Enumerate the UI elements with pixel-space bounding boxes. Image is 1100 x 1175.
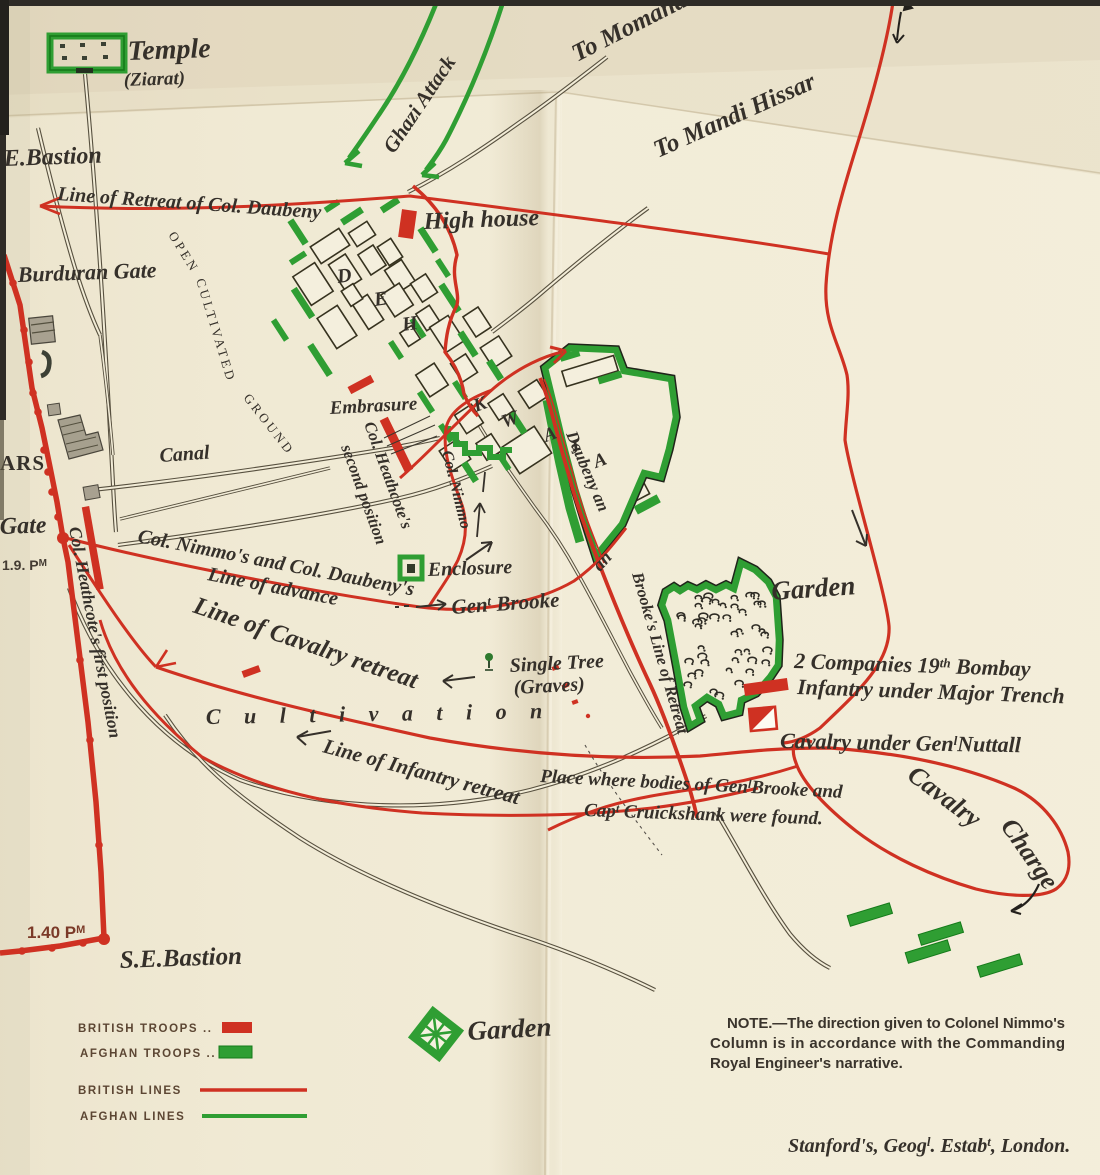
svg-text:High house: High house [422,205,540,235]
svg-text:S.E.Bastion: S.E.Bastion [119,943,242,974]
svg-text:BRITISH TROOPS ..: BRITISH TROOPS .. [78,1023,213,1035]
svg-text:Temple: Temple [127,33,211,67]
svg-text:(Graves): (Graves) [513,673,585,699]
svg-text:Canal: Canal [159,442,211,467]
svg-text:E.Bastion: E.Bastion [2,143,102,172]
svg-text:(Ziarat): (Ziarat) [123,68,185,91]
svg-text:Burduran Gate: Burduran Gate [16,257,157,287]
svg-text:AFGHAN LINES: AFGHAN LINES [80,1111,185,1123]
svg-text:D: D [335,264,353,288]
svg-text:Garden: Garden [467,1012,552,1046]
svg-text:NOTE.—The direction given to C: NOTE.—The direction given to Colonel Nim… [727,1015,1065,1032]
svg-text:Garden: Garden [770,570,856,606]
svg-text:BRITISH LINES: BRITISH LINES [78,1085,182,1097]
svg-text:Gate: Gate [0,512,47,540]
svg-text:ARS: ARS [0,451,45,475]
svg-text:Column is in accordance with t: Column is in accordance with the Command… [710,1035,1065,1052]
svg-text:Enclosure: Enclosure [426,556,512,581]
svg-text:AFGHAN TROOPS ..: AFGHAN TROOPS .. [80,1048,216,1060]
svg-text:Cavalry under GenlNuttall: Cavalry under GenlNuttall [780,728,1022,757]
svg-text:E: E [372,287,389,311]
svg-text:Royal Engineer's narrative.: Royal Engineer's narrative. [710,1055,903,1072]
